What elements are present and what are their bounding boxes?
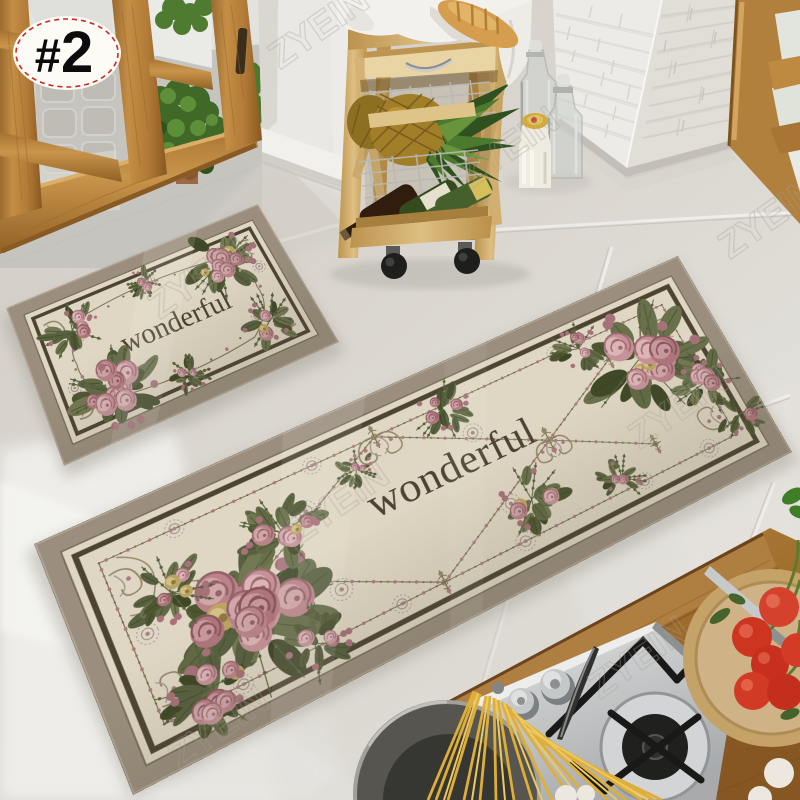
svg-text:#2: #2 xyxy=(35,20,93,85)
